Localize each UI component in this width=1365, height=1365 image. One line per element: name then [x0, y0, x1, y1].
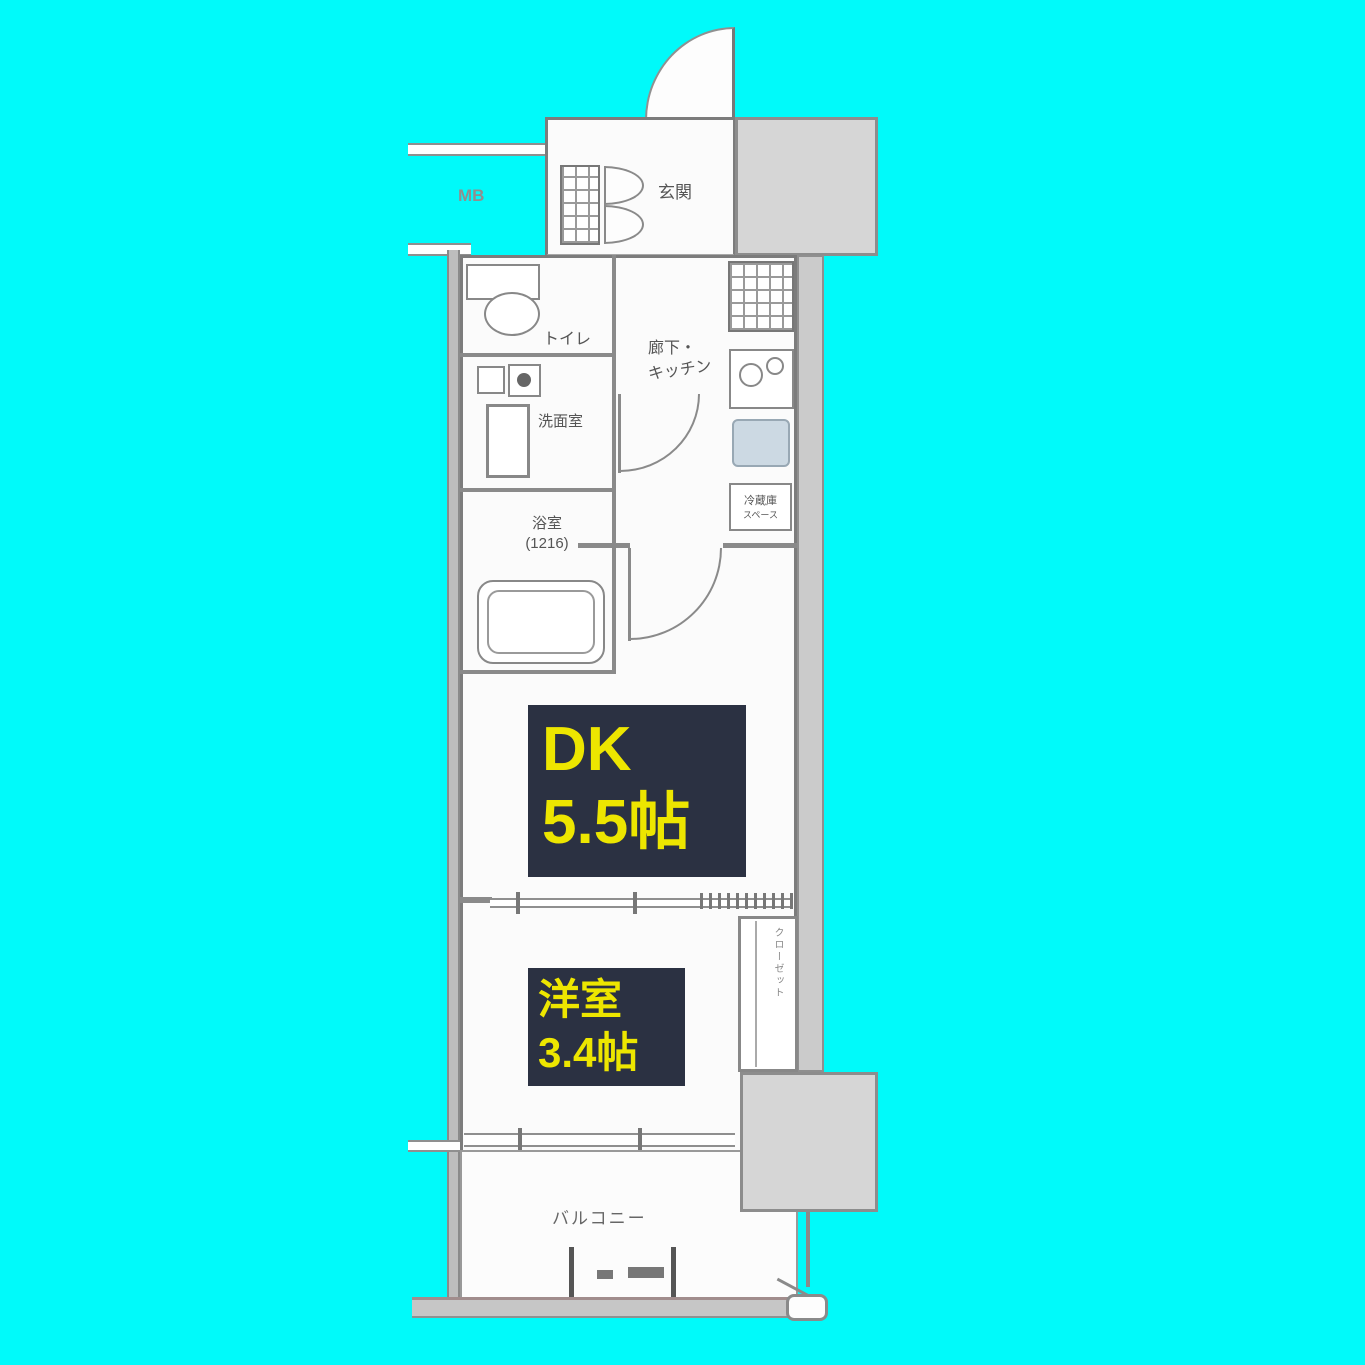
refrigerator-space: 冷蔵庫 スペース — [729, 483, 792, 531]
washbasin-drain — [517, 373, 531, 387]
neighbor-unit-top — [735, 117, 878, 256]
partition-tick-2 — [633, 892, 637, 914]
washing-machine-space — [486, 404, 530, 478]
dk-area-label: DK 5.5帖 — [528, 705, 746, 877]
stove-burner-left — [739, 363, 763, 387]
washroom-label: 洗面室 — [538, 410, 583, 431]
entrance-door-arc — [645, 27, 735, 120]
toilet-bowl — [484, 292, 540, 336]
wall-west-rooms — [612, 255, 616, 674]
partition-hatch — [700, 893, 797, 909]
closet-label: クローゼット — [770, 927, 785, 999]
western-room-name: 洋室 — [538, 974, 685, 1027]
balcony-rail-post-2 — [671, 1247, 676, 1297]
shoe-cabinet — [560, 165, 600, 245]
building-edge-bar — [412, 1297, 790, 1318]
window-tick-1 — [518, 1128, 522, 1150]
left-wall-return — [408, 1140, 460, 1152]
partition-tick-1 — [516, 892, 520, 914]
meter-box-label: MB — [458, 186, 484, 206]
partition-stub-left — [460, 897, 492, 903]
toilet-door-leaf — [618, 394, 621, 473]
western-room-size: 3.4帖 — [538, 1027, 685, 1080]
closet: クローゼット — [738, 916, 798, 1072]
bathroom-label-name: 浴室 — [505, 514, 589, 534]
closet-door-line — [755, 921, 757, 1067]
hallway-kitchen-label: 廊下・ キッチン — [648, 338, 712, 381]
bathtub-inner — [487, 590, 595, 654]
entrance-label: 玄関 — [658, 178, 692, 203]
wall-toilet-washroom — [460, 353, 615, 357]
floor-plan: MB 玄関 トイレ 洗面室 浴室 (1216) 廊下・ キッチン 冷蔵庫 — [0, 0, 1365, 1365]
balcony-hatch-mark-1 — [597, 1270, 613, 1279]
western-room-label: 洋室 3.4帖 — [528, 968, 685, 1086]
balcony-rail-post-1 — [569, 1247, 574, 1297]
kitchen-storage-shelf — [728, 261, 794, 332]
washstand-counter — [477, 366, 505, 394]
refrigerator-label-line1: 冷蔵庫 — [731, 492, 790, 508]
toilet-label: トイレ — [543, 325, 591, 349]
wall-washroom-bath — [460, 488, 615, 492]
refrigerator-label-line2: スペース — [731, 508, 790, 521]
balcony-label: バルコニー — [552, 1204, 647, 1229]
bathroom-label: 浴室 (1216) — [505, 514, 589, 553]
kitchen-sink — [732, 419, 790, 467]
outer-wall-right — [797, 255, 824, 1072]
hallway-label-line2: キッチン — [647, 355, 713, 385]
balcony-hatch-mark-2 — [628, 1267, 664, 1278]
window-tick-2 — [638, 1128, 642, 1150]
balcony-right-wall — [806, 1212, 810, 1287]
dk-door-leaf — [628, 548, 631, 641]
wall-hall-dk-right — [723, 543, 797, 548]
bathroom-size-note: (1216) — [505, 534, 589, 554]
dk-name: DK — [542, 713, 746, 786]
drain-box — [786, 1294, 828, 1321]
dk-size: 5.5帖 — [542, 786, 746, 859]
neighbor-unit-bottom — [740, 1072, 878, 1212]
balcony-window — [464, 1133, 735, 1147]
wall-bath-dk — [460, 670, 615, 674]
corridor-wall-line-top — [408, 143, 546, 156]
stove-burner-right — [766, 357, 784, 375]
